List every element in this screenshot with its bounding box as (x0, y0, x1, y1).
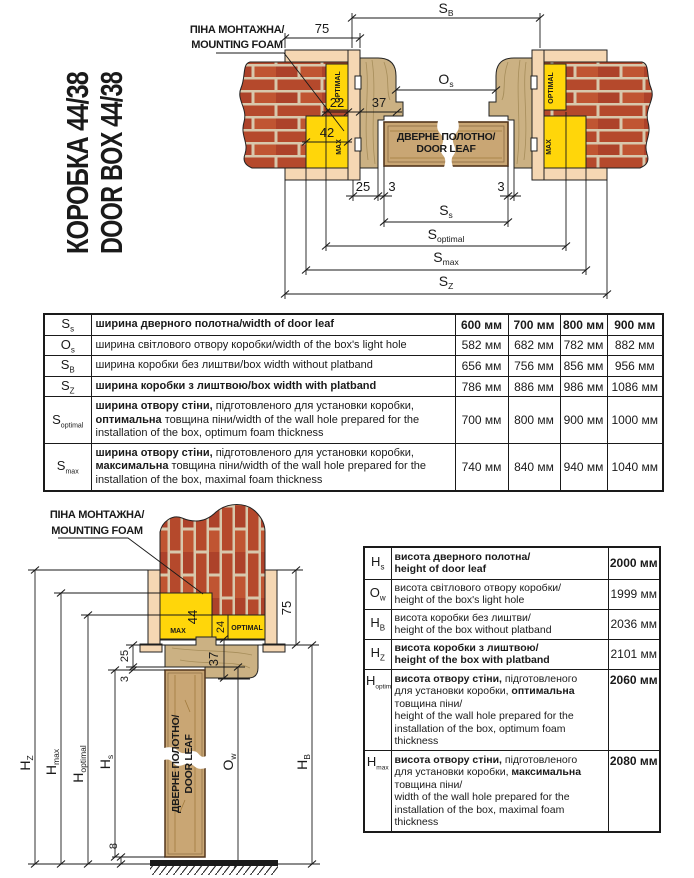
table-row: SB ширина коробки без лиштви/box width w… (44, 356, 663, 377)
door-leaf-label-en: DOOR LEAF (416, 143, 476, 155)
value-cell: 840 мм (508, 444, 560, 491)
row-symbol: Ow (364, 579, 391, 609)
dim-hz: HZ (17, 755, 35, 770)
value-cell: 900 мм (607, 314, 663, 335)
dim-hoptimal: Hoptimal (70, 745, 88, 783)
value-cell: 2000 мм (608, 547, 660, 579)
row-description: висота дверного полотна/height of door l… (391, 547, 608, 579)
row-description: висота світлового отвору коробки/height … (391, 579, 608, 609)
table-row: HB висота коробки без лиштви/height of t… (364, 609, 660, 639)
door-leaf: ДВЕРНЕ ПОЛОТНО/ DOOR LEAF (384, 121, 508, 167)
value-cell: 740 мм (455, 444, 508, 491)
value-cell: 956 мм (607, 356, 663, 377)
table-row: Hs висота дверного полотна/height of doo… (364, 547, 660, 579)
value-cell: 940 мм (560, 444, 607, 491)
row-symbol: Hs (364, 547, 391, 579)
dim-hmax: Hmax (43, 748, 61, 775)
dim-24: 24 (215, 621, 227, 633)
value-cell: 2036 мм (608, 609, 660, 639)
value-cell: 682 мм (508, 335, 560, 356)
table-row: Os ширина світлового отвору коробки/widt… (44, 335, 663, 356)
row-symbol: SB (44, 356, 91, 377)
dim-75: 75 (315, 21, 329, 36)
row-symbol: Hmax (364, 750, 391, 832)
value-cell: 2060 мм (608, 669, 660, 750)
value-cell: 600 мм (455, 314, 508, 335)
dim-ss: Ss (439, 202, 453, 220)
value-cell: 2080 мм (608, 750, 660, 832)
foam-max-caption-right: MAX (546, 139, 553, 155)
value-cell: 786 мм (455, 376, 508, 397)
value-cell: 882 мм (607, 335, 663, 356)
value-cell: 582 мм (455, 335, 508, 356)
page-title-line1: КОРОБКА 44/38 (60, 71, 95, 254)
dim-37: 37 (372, 95, 386, 110)
dim-44: 44 (185, 610, 200, 624)
door-leaf-label-uk: ДВЕРНЕ ПОЛОТНО/ (397, 131, 496, 143)
row-symbol: Os (44, 335, 91, 356)
dim-8: 8 (108, 843, 120, 849)
value-cell: 782 мм (560, 335, 607, 356)
page-title: КОРОБКА 44/38 DOOR BOX 44/38 (60, 71, 129, 254)
dim-sz: SZ (439, 273, 454, 291)
dim-smax: Smax (433, 249, 459, 267)
value-cell: 886 мм (508, 376, 560, 397)
value-cell: 800 мм (560, 314, 607, 335)
row-description: висота отвору стіни, підготовленогодля у… (391, 750, 608, 832)
dim-25: 25 (119, 650, 131, 662)
door-leaf-label-en: DOOR LEAF (183, 734, 195, 794)
value-cell: 1999 мм (608, 579, 660, 609)
table-row: Ss ширина дверного полотна/width of door… (44, 314, 663, 335)
dim-75: 75 (279, 601, 294, 615)
dim-hb: HB (294, 754, 312, 770)
dim-22: 22 (330, 95, 344, 110)
dim-os: Os (438, 71, 453, 89)
door-leaf: ДВЕРНЕ ПОЛОТНО/ DOOR LEAF (164, 670, 206, 857)
mounting-foam-label-uk: ПІНА МОНТАЖНА/ (50, 509, 144, 521)
value-cell: 1086 мм (607, 376, 663, 397)
row-description: висота коробки з лиштвою/height of the b… (391, 639, 608, 669)
height-table: Hs висота дверного полотна/height of doo… (363, 546, 661, 833)
value-cell: 856 мм (560, 356, 607, 377)
row-description: висота отвору стіни, підготовленогодля у… (391, 669, 608, 750)
dim-37: 37 (206, 652, 221, 666)
mounting-foam-label-en: MOUNTING FOAM (191, 39, 283, 51)
row-description: висота коробки без лиштви/height of the … (391, 609, 608, 639)
dim-25: 25 (356, 179, 370, 194)
row-description: ширина дверного полотна/width of door le… (91, 314, 455, 335)
width-section-drawing: КОРОБКА 44/38 DOOR BOX 44/38 (0, 0, 694, 312)
dim-hs: Hs (97, 755, 115, 769)
dim-3: 3 (119, 676, 131, 682)
row-symbol: Hoptimal (364, 669, 391, 750)
value-cell: 656 мм (455, 356, 508, 377)
value-cell: 700 мм (508, 314, 560, 335)
table-row: SZ ширина коробки з лиштвою/box width wi… (44, 376, 663, 397)
foam-max-caption: MAX (336, 139, 343, 155)
table-row: HZ висота коробки з лиштвою/height of th… (364, 639, 660, 669)
value-cell: 800 мм (508, 397, 560, 444)
table-row: Hoptimal висота отвору стіни, підготовле… (364, 669, 660, 750)
row-description: ширина коробки з лиштвою/box width with … (91, 376, 455, 397)
row-symbol: Ss (44, 314, 91, 335)
width-table: Ss ширина дверного полотна/width of door… (43, 313, 664, 492)
table-row: Ow висота світлового отвору коробки/heig… (364, 579, 660, 609)
spec-sheet-page: КОРОБКА 44/38 DOOR BOX 44/38 (0, 0, 694, 878)
table-row: Smax ширина отвору стіни, підготовленого… (44, 444, 663, 491)
value-cell: 1040 мм (607, 444, 663, 491)
value-cell: 1000 мм (607, 397, 663, 444)
value-cell: 900 мм (560, 397, 607, 444)
row-description: ширина отвору стіни, підготовленого для … (91, 397, 455, 444)
value-cell: 2101 мм (608, 639, 660, 669)
row-symbol: Soptimal (44, 397, 91, 444)
table-row: Soptimal ширина отвору стіни, підготовле… (44, 397, 663, 444)
row-symbol: Smax (44, 444, 91, 491)
table-row: Hmax висота отвору стіни, підготовленого… (364, 750, 660, 832)
mounting-foam-label-uk: ПІНА МОНТАЖНА/ (190, 24, 284, 36)
row-description: ширина коробки без лиштви/box width with… (91, 356, 455, 377)
value-cell: 986 мм (560, 376, 607, 397)
foam-max-caption: MAX (170, 628, 186, 635)
value-cell: 700 мм (455, 397, 508, 444)
dim-ow: Ow (220, 753, 238, 771)
dim-42: 42 (320, 125, 334, 140)
foam-optimal-caption-right: OPTIMAL (548, 72, 555, 104)
row-symbol: HB (364, 609, 391, 639)
dim-sb: SB (438, 0, 453, 18)
value-cell: 756 мм (508, 356, 560, 377)
page-title-line2: DOOR BOX 44/38 (94, 71, 129, 254)
row-description: ширина світлового отвору коробки/width o… (91, 335, 455, 356)
dim-3-left: 3 (388, 179, 395, 194)
row-symbol: SZ (44, 376, 91, 397)
height-section-drawing: 44 MAX 24 OPTIMAL ДВЕРНЕ ПОЛОТНО/ DOOR L… (15, 488, 360, 878)
foam-optimal-caption: OPTIMAL (231, 625, 263, 632)
mounting-foam-label-en: MOUNTING FOAM (51, 525, 143, 537)
floor (150, 860, 278, 875)
door-leaf-label-uk: ДВЕРНЕ ПОЛОТНО/ (170, 715, 182, 814)
row-description: ширина отвору стіни, підготовленого для … (91, 444, 455, 491)
row-symbol: HZ (364, 639, 391, 669)
dim-soptimal: Soptimal (428, 226, 465, 244)
dim-3-right: 3 (497, 179, 504, 194)
